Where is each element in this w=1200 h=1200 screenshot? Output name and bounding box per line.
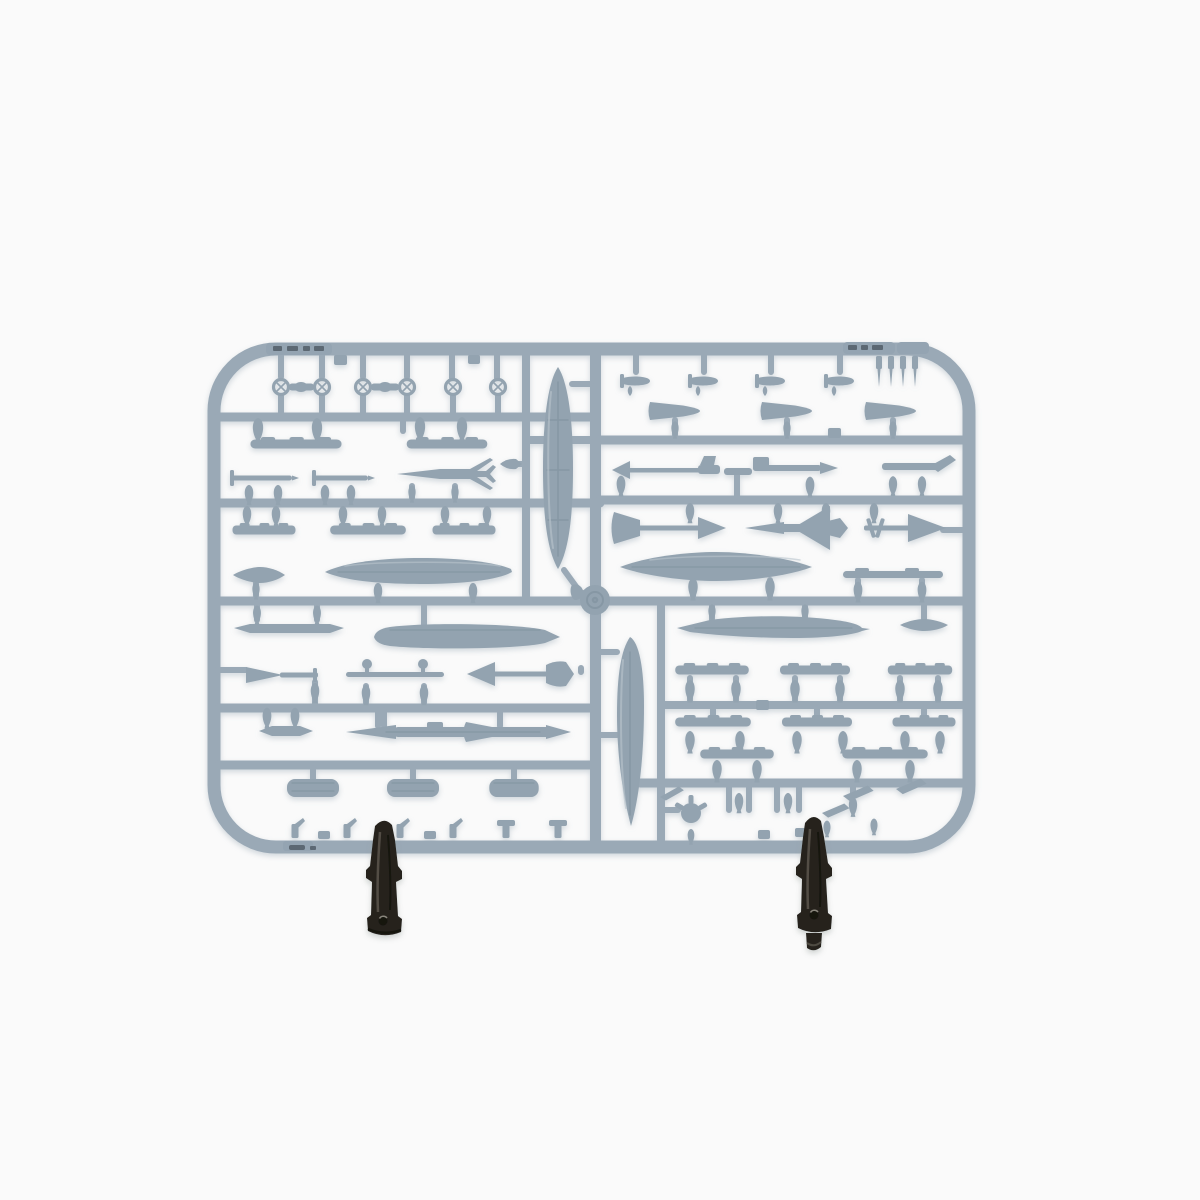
bomb-rack (407, 437, 488, 449)
sprue-tab (334, 355, 347, 365)
bomb-rack (893, 715, 956, 727)
bomb-rack (675, 663, 749, 675)
bomb-rack (433, 523, 496, 535)
product-photo (0, 0, 1200, 1200)
bomb-rack (233, 523, 296, 535)
bomb-rack (780, 663, 850, 675)
pod-cylinder (287, 779, 339, 797)
bomb-rack (251, 437, 342, 449)
pod-cylinder (387, 779, 439, 797)
bomb-rack (700, 747, 774, 759)
sprue-photo-canvas (0, 0, 1200, 1200)
bomb-rack (888, 663, 952, 675)
bomb-rack (782, 715, 852, 727)
bomb-rack (842, 747, 927, 759)
bomb-rack (675, 715, 751, 727)
sprue-tab (468, 355, 480, 364)
bomb-rack (330, 523, 406, 535)
runner-hub (580, 585, 610, 615)
pod-cylinder (489, 779, 538, 797)
